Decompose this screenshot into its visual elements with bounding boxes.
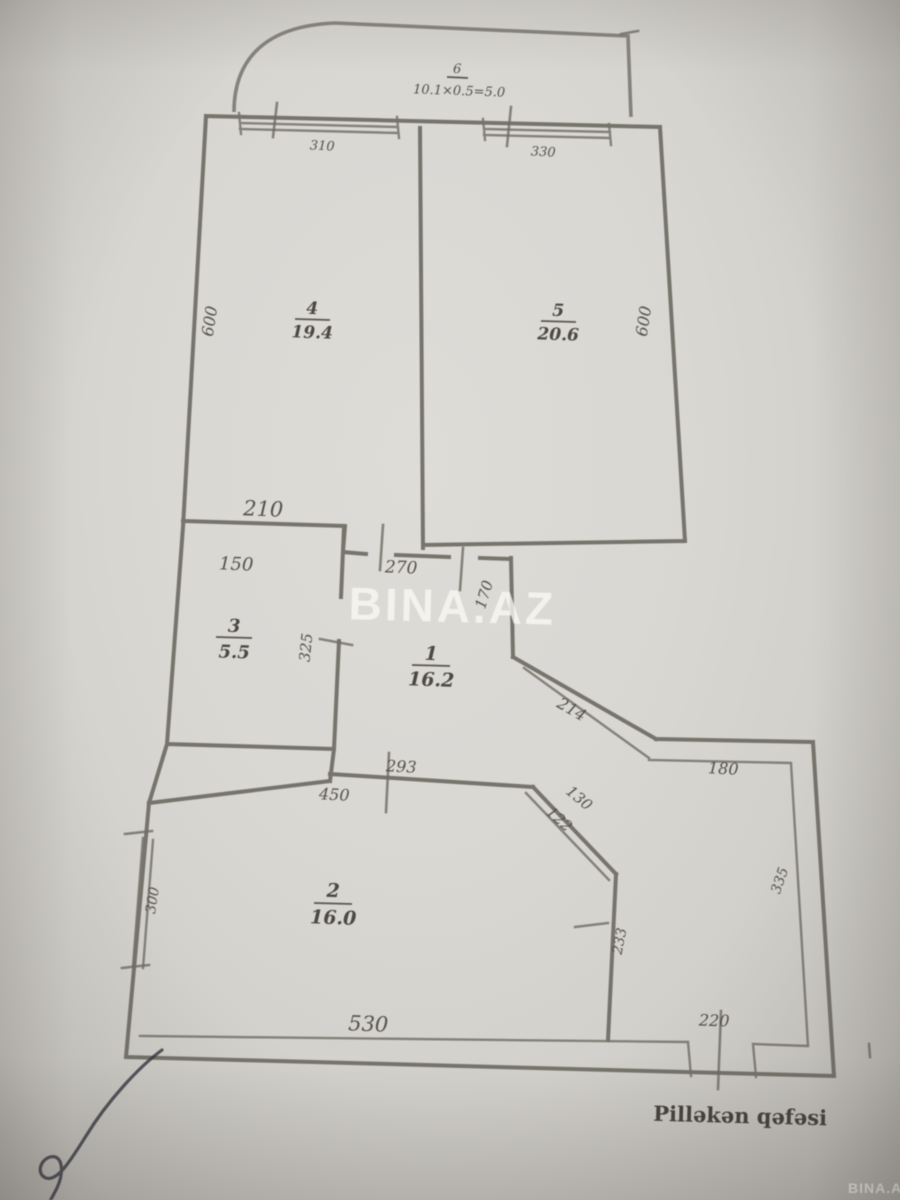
- dim-room2-top: 450: [318, 784, 350, 805]
- floor-plan-drawing: BINA.AZ 6 10.1×0.5=5.0 4 19.4 5 20.6 3 5…: [0, 0, 900, 1200]
- room-5-number: 5: [552, 301, 565, 321]
- room-2-number: 2: [325, 880, 340, 902]
- balcony-number: 6: [453, 62, 462, 77]
- dim-hall-bottom: 293: [385, 756, 417, 777]
- dim-room3-width: 150: [219, 553, 254, 575]
- pen-scribble: [40, 1050, 162, 1200]
- dim-diag-lower-a: 130: [562, 782, 596, 814]
- room-3-area: 5.5: [218, 641, 250, 663]
- dim-hall-top: 270: [384, 557, 418, 578]
- room-2-area: 16.0: [310, 906, 357, 930]
- dim-room3-height: 325: [296, 632, 317, 662]
- floor-plan-photo: BINA.AZ 6 10.1×0.5=5.0 4 19.4 5 20.6 3 5…: [0, 0, 900, 1200]
- dim-right-lower: 335: [768, 865, 792, 896]
- room-5-area: 20.6: [536, 324, 579, 345]
- stairwell-caption: Pilləkən qəfəsi: [653, 1101, 827, 1131]
- room-3-number: 3: [228, 616, 241, 637]
- dim-window-left: 310: [309, 138, 335, 154]
- dim-stair-door: 220: [698, 1010, 730, 1030]
- room-1-number: 1: [424, 643, 438, 665]
- dim-ledge: 180: [708, 758, 739, 779]
- watermark-corner: BINA.AZ: [848, 1180, 900, 1196]
- watermark-center: BINA.AZ: [348, 577, 557, 634]
- balcony-outline: [234, 23, 631, 117]
- dim-room3-top: 210: [242, 496, 284, 521]
- dim-side-right: 600: [632, 305, 656, 338]
- dim-window-right: 330: [530, 144, 556, 160]
- balcony-formula: 10.1×0.5=5.0: [413, 82, 506, 100]
- room-4-area: 19.4: [291, 322, 333, 343]
- room-1-area: 16.2: [408, 668, 455, 692]
- dim-room2-bottom: 530: [348, 1011, 389, 1036]
- dim-room2-left: 300: [143, 886, 163, 915]
- dim-side-left: 600: [198, 305, 222, 338]
- room-4-number: 4: [306, 299, 319, 319]
- dim-diag-lower-b: 122: [543, 803, 576, 836]
